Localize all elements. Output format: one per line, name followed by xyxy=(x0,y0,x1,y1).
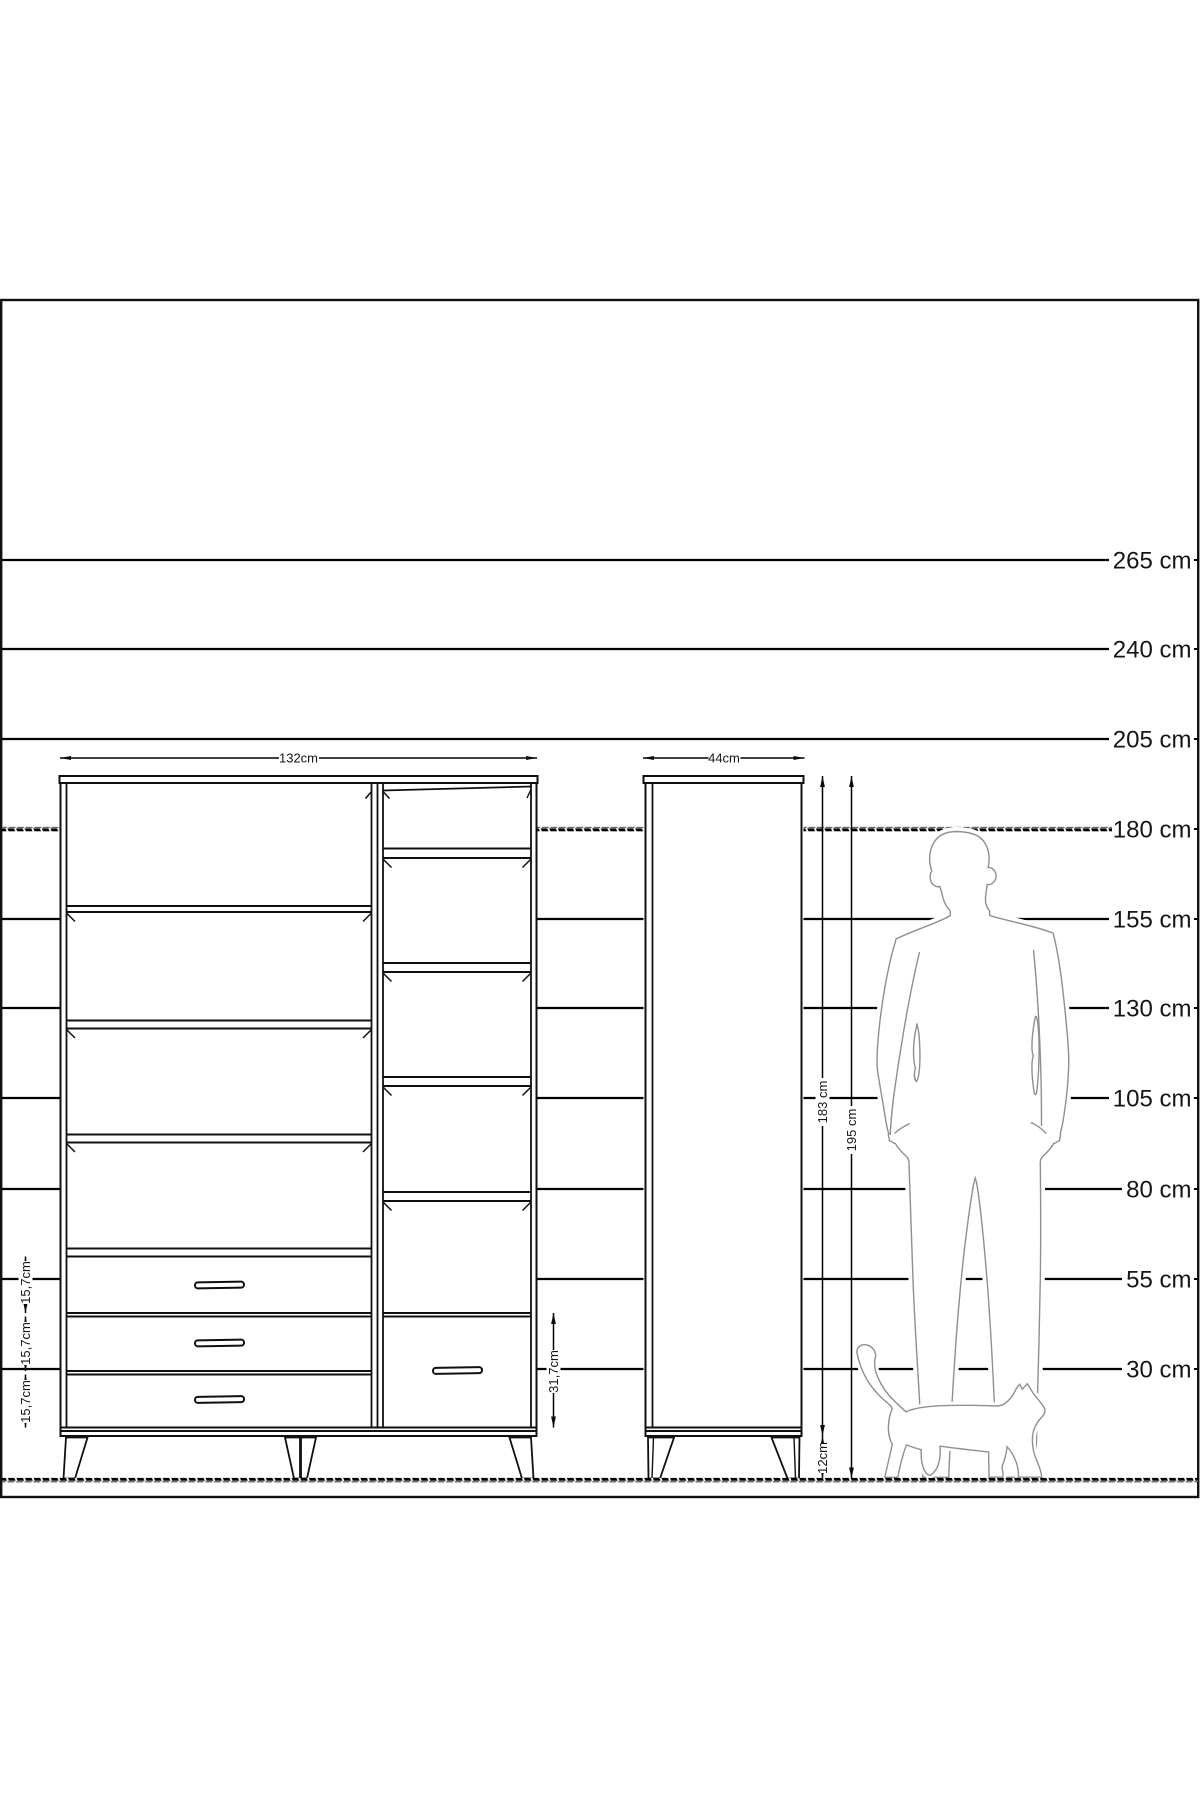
svg-text:205 cm: 205 cm xyxy=(1113,727,1192,754)
svg-text:15,7cm: 15,7cm xyxy=(18,1322,33,1365)
svg-text:265 cm: 265 cm xyxy=(1113,548,1192,575)
svg-text:55 cm: 55 cm xyxy=(1126,1267,1191,1294)
svg-text:12cm: 12cm xyxy=(815,1442,830,1474)
svg-text:132cm: 132cm xyxy=(279,751,318,766)
svg-text:105 cm: 105 cm xyxy=(1113,1086,1192,1113)
svg-text:80 cm: 80 cm xyxy=(1126,1177,1191,1204)
svg-text:195 cm: 195 cm xyxy=(844,1109,859,1152)
svg-text:44cm: 44cm xyxy=(708,751,740,766)
svg-text:15,7cm: 15,7cm xyxy=(18,1380,33,1423)
svg-text:130 cm: 130 cm xyxy=(1113,996,1192,1023)
svg-text:30 cm: 30 cm xyxy=(1126,1357,1191,1384)
svg-text:31,7cm: 31,7cm xyxy=(546,1350,561,1393)
svg-text:240 cm: 240 cm xyxy=(1113,637,1192,664)
svg-text:15,7cm: 15,7cm xyxy=(18,1261,33,1304)
svg-text:180 cm: 180 cm xyxy=(1113,817,1192,844)
svg-text:155 cm: 155 cm xyxy=(1113,907,1192,934)
svg-text:183 cm: 183 cm xyxy=(815,1081,830,1124)
